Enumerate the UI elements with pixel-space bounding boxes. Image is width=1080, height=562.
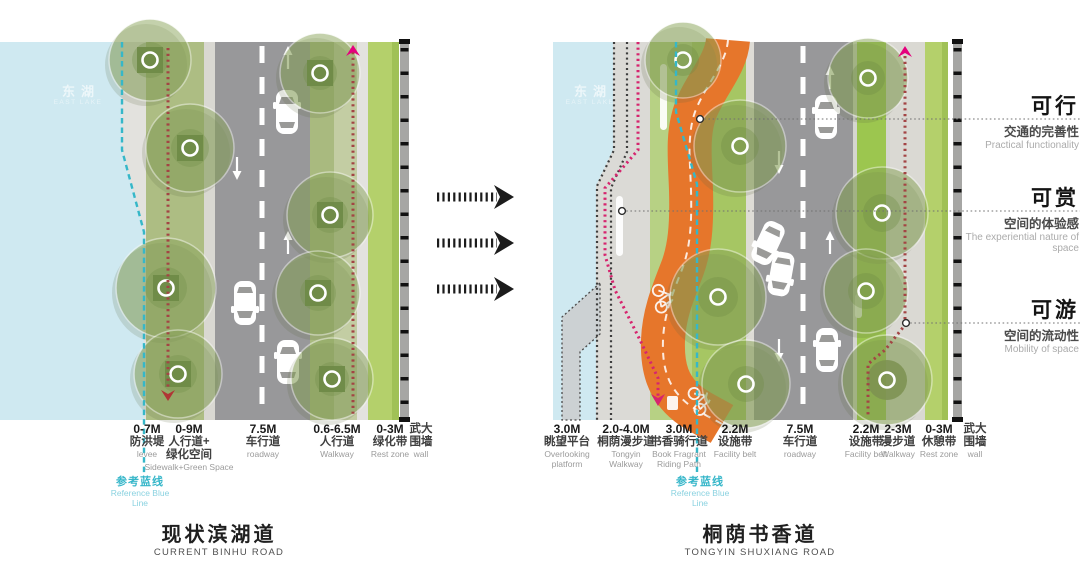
east-walkway [890,42,925,420]
water-name-zh: 东湖 [555,84,625,99]
water-name-zh: 东湖 [43,84,113,99]
lawn-band [146,42,210,420]
annotation-experiential: 可赏 空间的体验感 The experiential nature of spa… [947,188,1080,254]
car-icon [763,250,798,298]
annotation-practical: 可行 交通的完善性 Practical functionality [947,96,1080,151]
east-route-line [868,46,912,417]
car-icon [274,340,302,384]
left-diagram-title: 现状滨湖道 CURRENT BINHU ROAD [79,524,359,558]
comparison-diagram: 东湖 EAST LAKE 东湖 EAST LAKE 0-7M 防洪堤 levee… [0,0,1080,562]
dim-label: 7.5M 车行道 roadway [765,423,835,460]
car-icon [812,95,840,139]
roadway [754,42,853,420]
route-line-east [346,45,360,414]
green-strip [368,42,399,420]
dim-label: 武大 围墙 wall [403,423,439,460]
east-walkway [310,42,368,420]
water-label: 东湖 EAST LAKE [555,84,625,106]
riding-path-centerline [663,40,728,424]
reference-blue-line-label: 参考蓝线 Reference Blue Line [85,476,195,508]
dim-label: 3.0M 眺望平台 Overlooking platform [536,423,598,469]
facility-belt [853,42,890,420]
reference-blue-line-label: 参考蓝线 Reference Blue Line [645,476,755,508]
reference-blue-line [122,42,144,474]
dim-label: 3.0M 书香骑行道 Book Fragrant Riding Path [643,423,715,469]
water-name-en: EAST LAKE [555,99,625,106]
shore-walkway [122,42,215,420]
water-label: 东湖 EAST LAKE [43,84,113,106]
arrow-right-icon [437,277,514,301]
overlook-platform [562,283,600,420]
roadway [215,42,310,420]
water-name-en: EAST LAKE [43,99,113,106]
trees [641,22,932,433]
dim-label: 0.6-6.5M 人行道 Walkway [302,423,372,460]
reference-blue-line [676,42,697,474]
dim-label: 武大 围墙 wall [957,423,993,460]
dim-label: 7.5M 车行道 roadway [228,423,298,460]
transition-arrows [437,185,514,301]
rest-strip [925,42,948,420]
lane-arrow-icon [233,46,293,254]
annotation-mobility: 可游 空间的流动性 Mobility of space [947,300,1080,355]
trees [105,19,373,425]
dim-label: 2.2M 设施带 Facility belt [706,423,764,460]
right-diagram-title: 桐荫书香道 TONGYIN SHUXIANG ROAD [620,524,900,558]
route-line-west [161,48,175,401]
car-icon [746,217,790,269]
university-wall [399,39,410,422]
car-icon [273,90,301,134]
lane-arrow-icon [775,66,835,362]
bicycle-icon [687,384,714,417]
bench [616,64,862,410]
riding-path-orange [663,40,728,424]
car-icon [813,328,841,372]
leader-markers [619,116,910,327]
walkway-green [650,42,754,420]
arrow-right-icon [437,231,514,255]
bicycle-icon [652,283,675,314]
arrow-right-icon [437,185,514,209]
car-icon [231,281,259,325]
